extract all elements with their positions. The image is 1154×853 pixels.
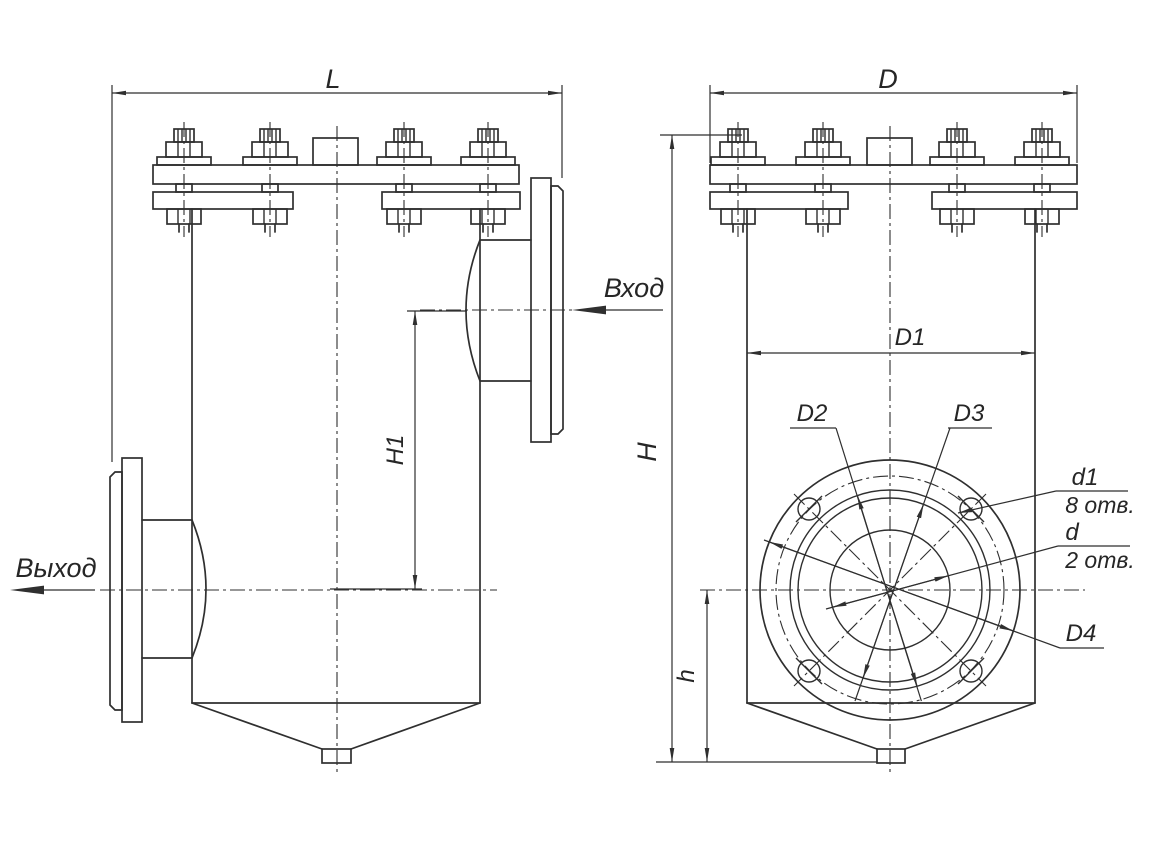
right-body-flange-right xyxy=(932,192,1077,209)
bolt-assembly xyxy=(711,122,765,237)
right-cone-bottom xyxy=(747,703,1035,763)
dim-D3: D3 xyxy=(855,400,992,701)
dim-label-D: D xyxy=(878,64,898,94)
inlet-flow-arrow xyxy=(572,306,606,315)
dim-label-d-count: 2 отв. xyxy=(1064,547,1135,573)
dim-label-H: H xyxy=(632,442,662,462)
left-lid-boss xyxy=(313,138,358,165)
dim-label-d1-count: 8 отв. xyxy=(1065,492,1135,518)
left-body-flange-right xyxy=(382,192,520,209)
dim-D2: D2 xyxy=(790,400,921,701)
dim-label-D4: D4 xyxy=(1066,620,1097,647)
bolt-assembly xyxy=(377,122,431,237)
inlet-label: Вход xyxy=(604,273,664,303)
outlet-label: Выход xyxy=(15,553,96,583)
outlet-flow-arrow xyxy=(10,586,44,595)
dim-h: h xyxy=(673,590,707,762)
right-view xyxy=(700,122,1085,775)
dim-label-L: L xyxy=(325,64,340,94)
inlet-flow-annotation: Вход xyxy=(420,273,664,314)
bolt-assembly xyxy=(1015,122,1069,237)
bolt-assembly xyxy=(461,122,515,237)
bolt-assembly xyxy=(157,122,211,237)
left-lid-plate xyxy=(153,165,519,184)
left-view xyxy=(110,122,563,775)
right-body-flange-left xyxy=(710,192,848,209)
dim-label-D2: D2 xyxy=(797,400,828,427)
left-cone-bottom xyxy=(192,703,480,763)
outlet-flow-annotation: Выход xyxy=(10,553,497,594)
dim-D: D xyxy=(710,64,1077,163)
dim-label-d1: d1 xyxy=(1072,464,1099,491)
right-drain-nozzle xyxy=(877,749,905,763)
dim-H1: H1 xyxy=(330,311,467,589)
left-body-flange-left xyxy=(153,192,293,209)
drawing-canvas: L D D1 H h H1 xyxy=(0,0,1154,853)
dim-label-d: d xyxy=(1065,519,1079,546)
dim-label-h: h xyxy=(673,669,700,682)
dim-label-D3: D3 xyxy=(954,400,985,427)
right-lid-plate xyxy=(710,165,1077,184)
dim-d1: d1 8 отв. xyxy=(958,464,1135,518)
bolt-assembly xyxy=(243,122,297,237)
dim-label-H1: H1 xyxy=(382,435,409,466)
dim-D1: D1 xyxy=(747,324,1035,353)
dim-label-D1: D1 xyxy=(895,324,926,351)
bolt-assembly xyxy=(930,122,984,237)
bolt-assembly xyxy=(796,122,850,237)
technical-drawing: L D D1 H h H1 xyxy=(0,0,1154,853)
